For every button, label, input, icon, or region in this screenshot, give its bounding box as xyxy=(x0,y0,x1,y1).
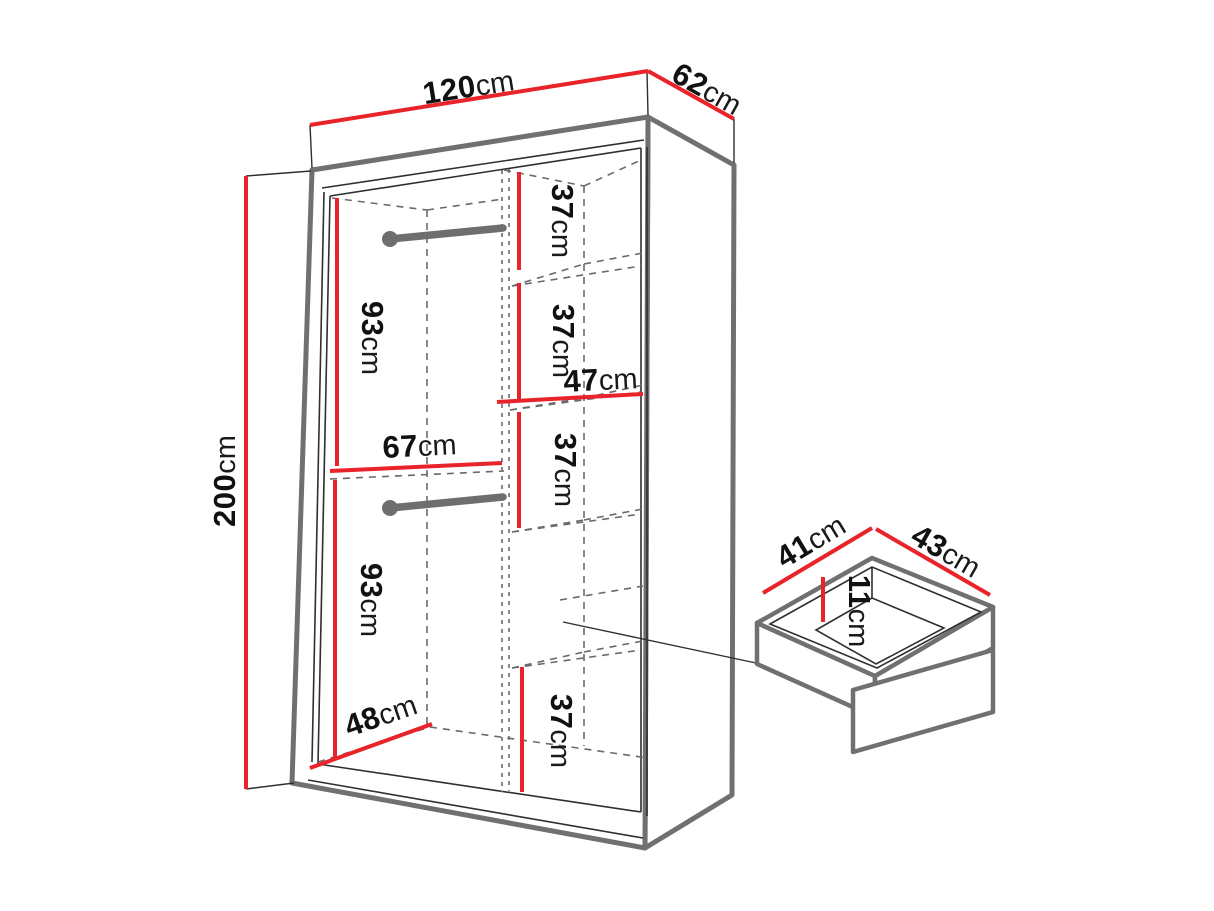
ext-width-right xyxy=(647,71,648,115)
ext-height-top xyxy=(246,171,311,176)
label-shelf3-37: 37cm xyxy=(548,433,583,507)
label-drawer-11: 11cm xyxy=(842,575,877,647)
diagram-canvas: 120cm 62cm 200cm 93cm 93cm 67cm 47cm 37c… xyxy=(0,0,1214,911)
label-height-200: 200cm xyxy=(207,435,242,527)
wardrobe-side-face xyxy=(645,117,734,848)
label-width-120: 120cm xyxy=(420,62,516,111)
rail-top-end-cap xyxy=(382,231,398,247)
label-shelf4-37: 37cm xyxy=(544,694,579,768)
label-depth-62: 62cm xyxy=(666,56,748,123)
label-hang-lower-93: 93cm xyxy=(354,563,389,637)
label-shelf2-37: 37cm xyxy=(546,304,581,378)
label-hang-upper-93: 93cm xyxy=(355,301,390,375)
ext-width-left xyxy=(310,125,312,168)
wardrobe-dimension-diagram: 120cm 62cm 200cm 93cm 93cm 67cm 47cm 37c… xyxy=(0,0,1214,911)
label-shelf1-37: 37cm xyxy=(545,184,580,258)
label-width-67: 67cm xyxy=(382,426,458,465)
rail-bottom-end-cap xyxy=(382,500,398,516)
wardrobe-front-face xyxy=(292,117,648,848)
ext-height-bottom xyxy=(246,783,294,789)
